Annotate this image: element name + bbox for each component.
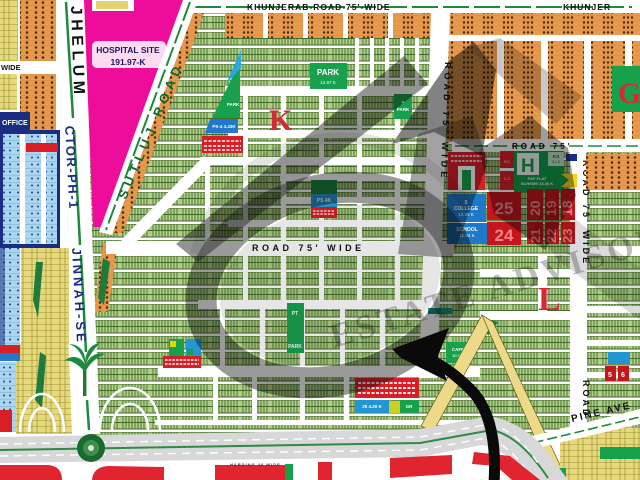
svg-text:K: K xyxy=(269,104,293,137)
svg-text:JHELUM: JHELUM xyxy=(67,6,87,99)
svg-text:G: G xyxy=(618,77,640,110)
svg-text:191.97-K: 191.97-K xyxy=(111,57,147,67)
svg-text:PARK: PARK xyxy=(317,68,339,77)
svg-text:24: 24 xyxy=(495,226,514,245)
svg-text:GR: GR xyxy=(406,404,414,409)
svg-text:PARK: PARK xyxy=(397,107,410,112)
svg-text:HARDING 40 WIDE: HARDING 40 WIDE xyxy=(230,462,281,467)
svg-text:12.97 K: 12.97 K xyxy=(320,80,336,85)
svg-text:5: 5 xyxy=(608,372,612,379)
svg-text:KHUNJERAB-ROAD-75'-WIDE: KHUNJERAB-ROAD-75'-WIDE xyxy=(247,2,391,12)
svg-text:6: 6 xyxy=(621,372,625,379)
svg-text:WIDE: WIDE xyxy=(1,63,21,72)
svg-text:OFFICE: OFFICE xyxy=(2,120,28,127)
svg-text:KHUNJER: KHUNJER xyxy=(563,2,611,12)
svg-text:PS-4 4.33K: PS-4 4.33K xyxy=(212,124,236,129)
svg-text:HOSPITAL SITE: HOSPITAL SITE xyxy=(96,45,160,55)
svg-text:PARK: PARK xyxy=(227,102,240,107)
svg-text:25 4.20 K: 25 4.20 K xyxy=(362,404,382,409)
